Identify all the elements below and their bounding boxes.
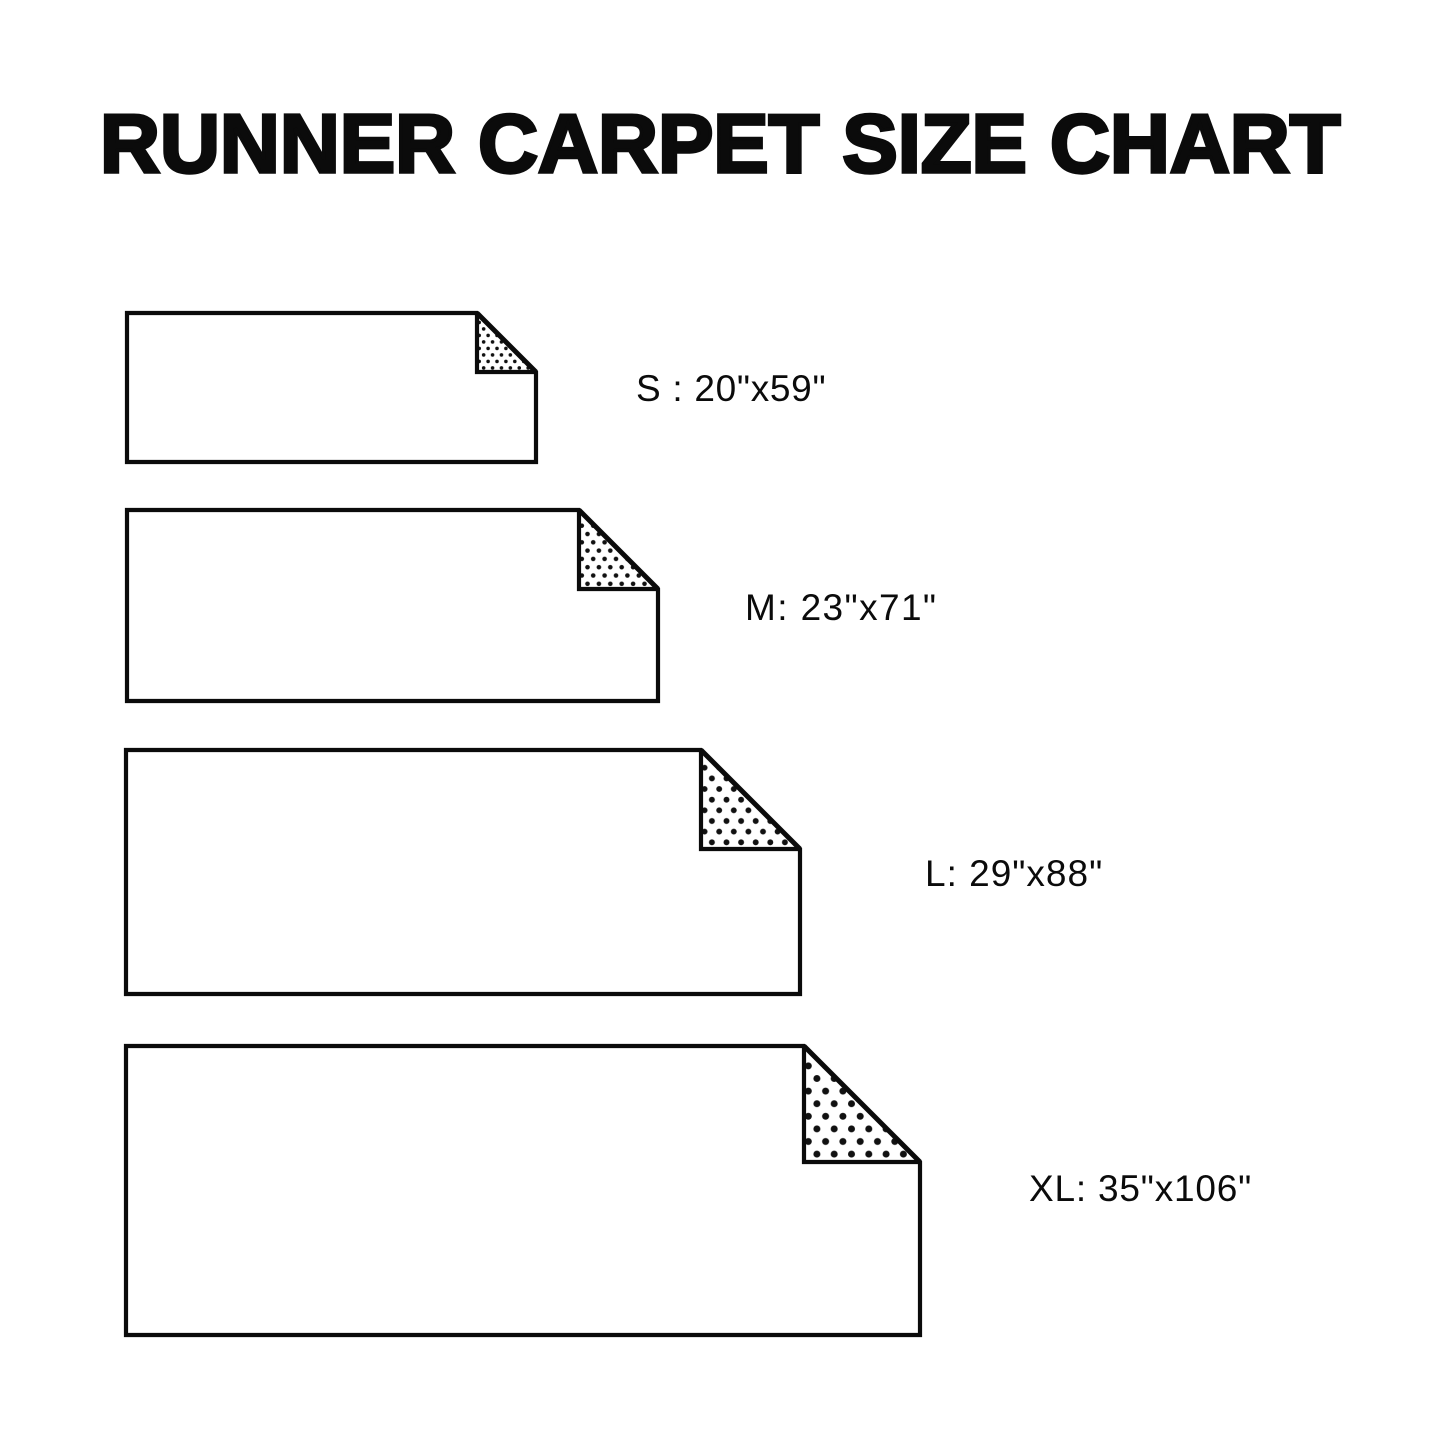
svg-text:L: 29"x88": L: 29"x88" xyxy=(925,853,1103,894)
svg-text:RUNNER CARPET SIZE CHART: RUNNER CARPET SIZE CHART xyxy=(100,97,1340,190)
svg-text:M: 23"x71": M: 23"x71" xyxy=(745,587,937,628)
svg-text:XL: 35"x106": XL: 35"x106" xyxy=(1029,1168,1252,1209)
svg-text:S : 20"x59": S : 20"x59" xyxy=(636,368,826,409)
